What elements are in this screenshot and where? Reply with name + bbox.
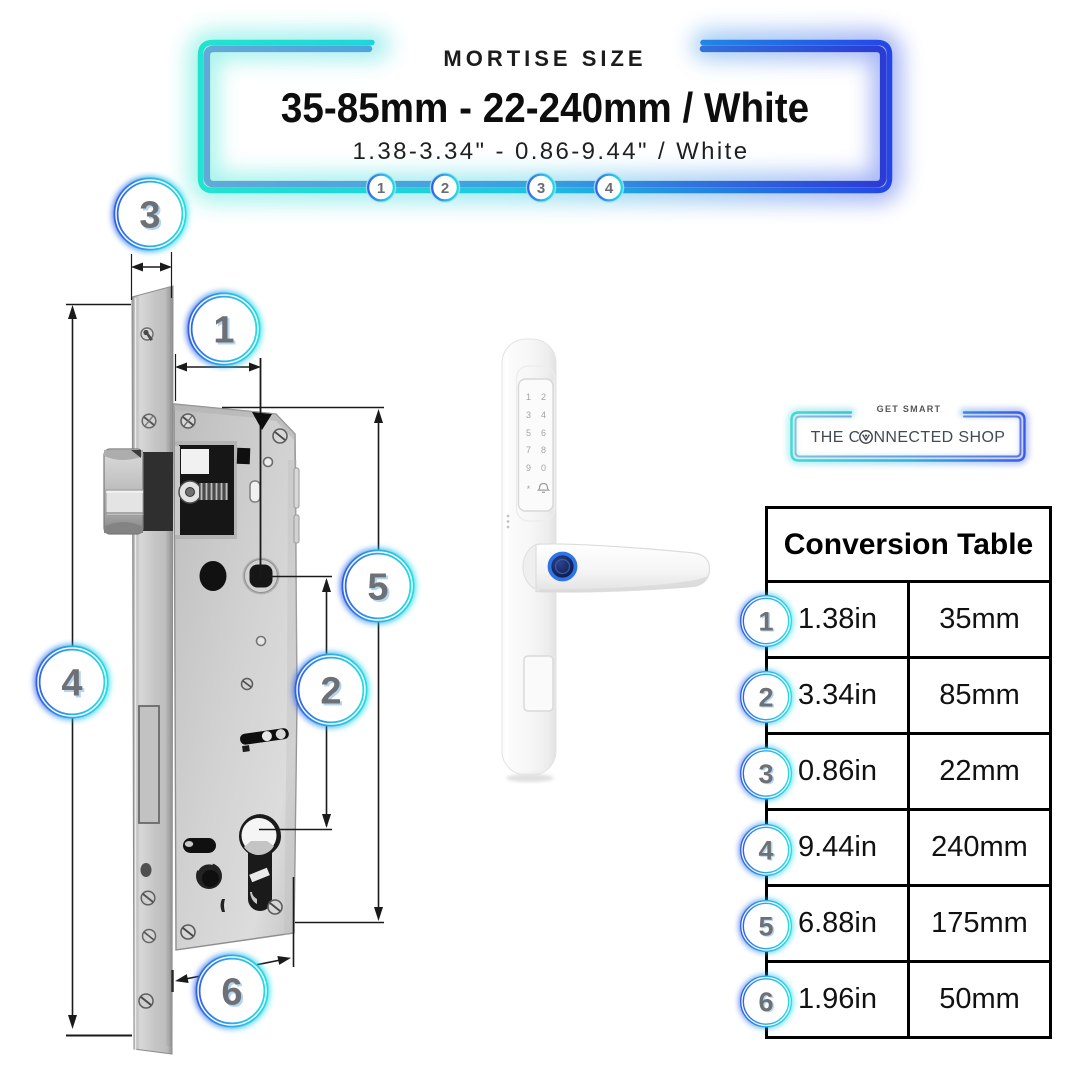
svg-text:9: 9 xyxy=(526,463,531,473)
svg-text:4: 4 xyxy=(61,663,82,705)
svg-text:1: 1 xyxy=(213,310,234,352)
svg-text:*: * xyxy=(527,484,531,494)
svg-text:5: 5 xyxy=(367,567,388,609)
svg-text:1: 1 xyxy=(377,180,385,197)
svg-text:7: 7 xyxy=(526,445,531,455)
svg-text:4: 4 xyxy=(541,410,546,420)
svg-text:6: 6 xyxy=(758,987,773,1017)
svg-text:4: 4 xyxy=(758,836,773,866)
svg-text:1: 1 xyxy=(526,392,531,402)
svg-text:6: 6 xyxy=(541,428,546,438)
svg-text:3: 3 xyxy=(526,410,531,420)
svg-text:8: 8 xyxy=(541,445,546,455)
svg-text:2: 2 xyxy=(320,671,341,713)
svg-text:2: 2 xyxy=(758,683,773,713)
svg-text:2: 2 xyxy=(541,392,546,402)
svg-text:5: 5 xyxy=(526,428,531,438)
svg-text:2: 2 xyxy=(441,180,449,197)
svg-text:1: 1 xyxy=(758,607,773,637)
svg-text:3: 3 xyxy=(537,180,545,197)
svg-text:3: 3 xyxy=(139,195,160,237)
svg-text:6: 6 xyxy=(221,972,242,1014)
svg-text:0: 0 xyxy=(541,463,546,473)
svg-text:5: 5 xyxy=(758,912,773,942)
svg-text:3: 3 xyxy=(758,759,773,789)
svg-text:4: 4 xyxy=(605,180,614,197)
